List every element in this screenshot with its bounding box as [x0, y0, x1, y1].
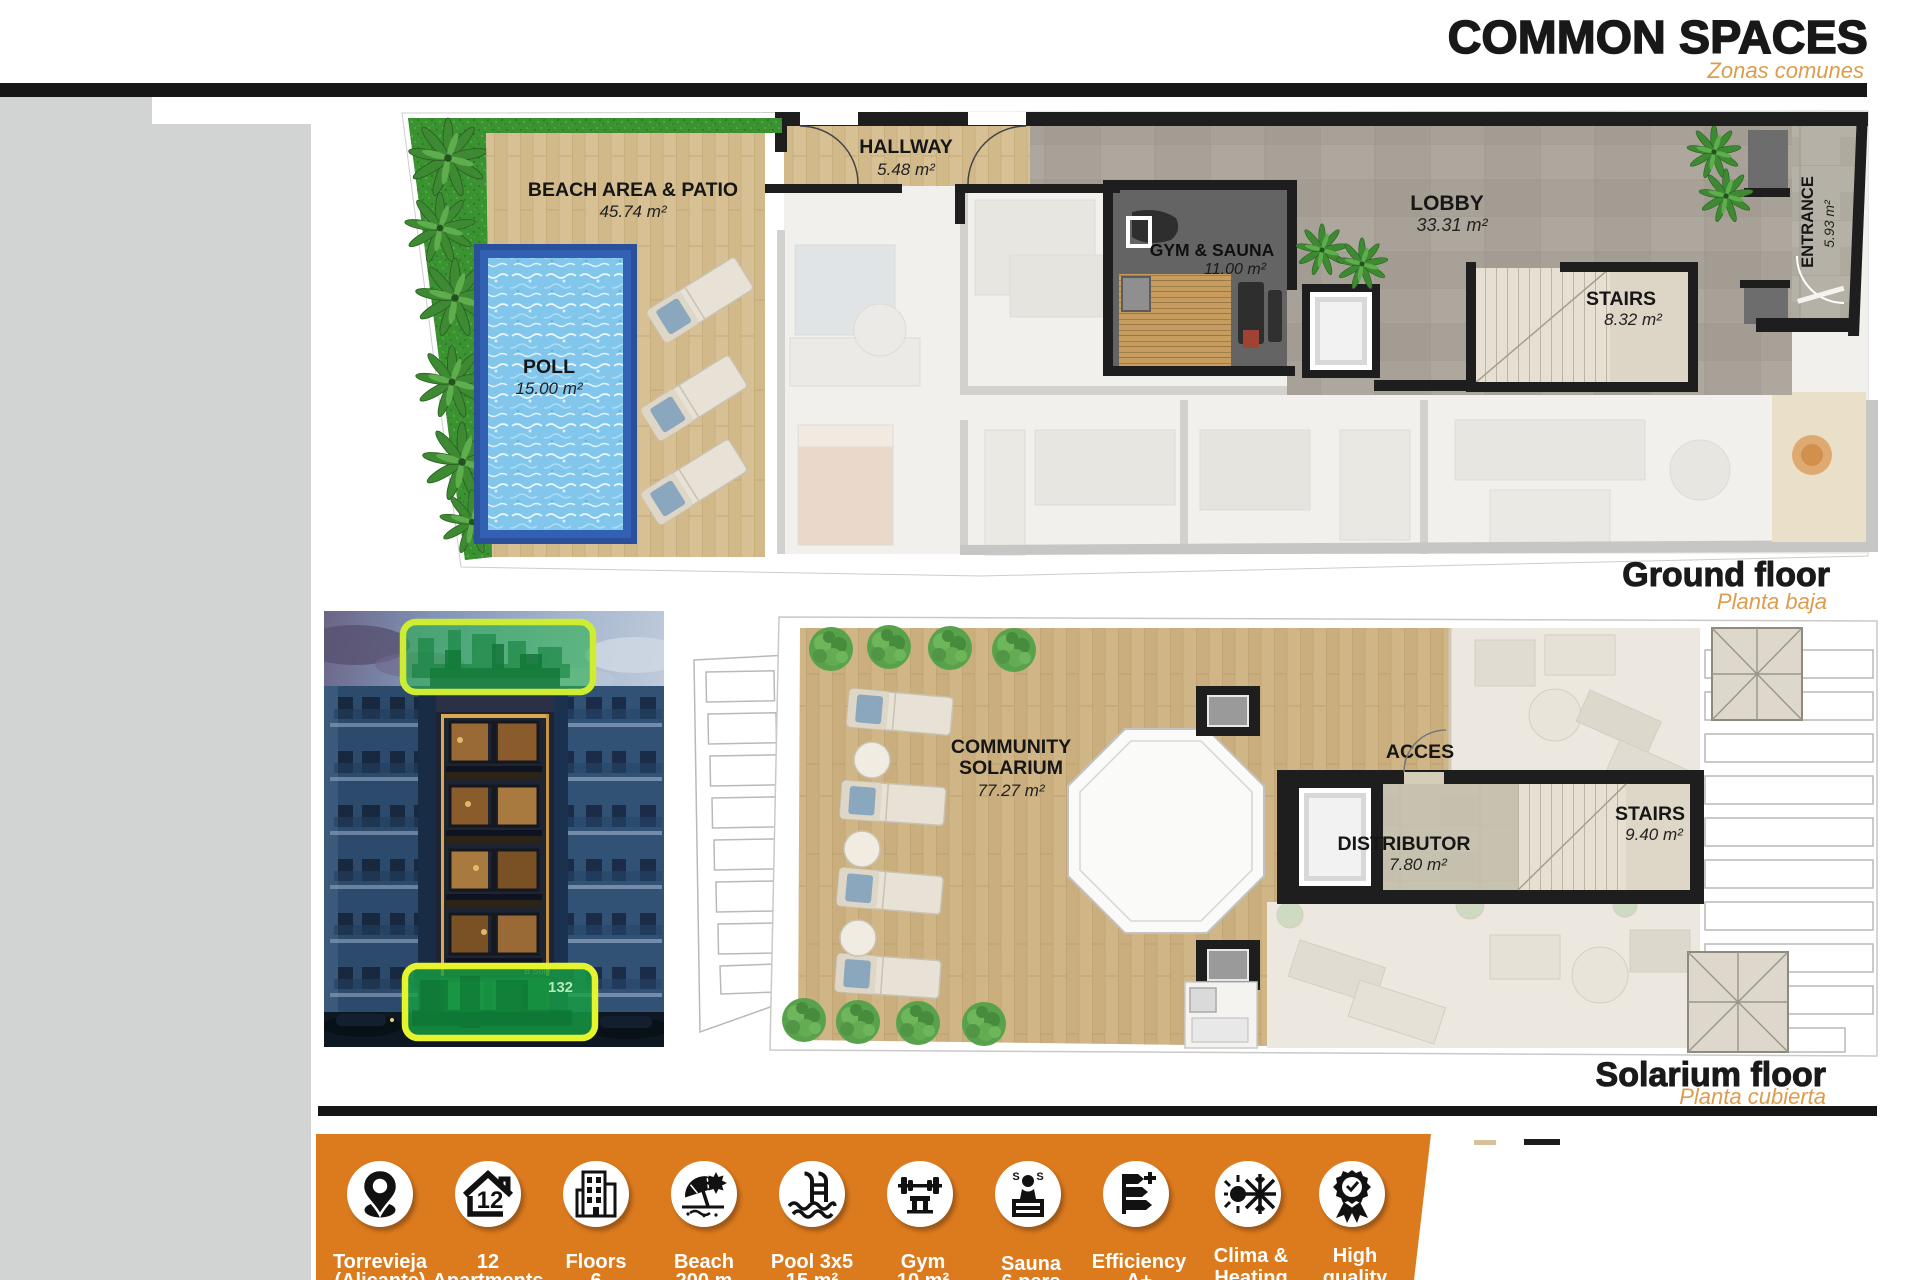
svg-text:5.48 m²: 5.48 m² [877, 160, 936, 179]
svg-text:HALLWAY: HALLWAY [859, 136, 953, 158]
svg-text:12: 12 [477, 1187, 504, 1214]
svg-text:COMMON SPACES: COMMON SPACES [1448, 11, 1868, 63]
svg-text:33.31 m²: 33.31 m² [1416, 215, 1488, 235]
svg-text:8.32 m²: 8.32 m² [1604, 310, 1663, 329]
svg-text:Planta baja: Planta baja [1717, 589, 1827, 614]
svg-text:5.93 m²: 5.93 m² [1821, 199, 1837, 248]
svg-text:Apartments: Apartments [432, 1270, 543, 1280]
svg-text:9.40 m²: 9.40 m² [1625, 825, 1684, 844]
svg-text:15.00 m²: 15.00 m² [515, 379, 583, 398]
svg-text:11.00 m²: 11.00 m² [1204, 261, 1267, 278]
svg-text:quality: quality [1323, 1267, 1388, 1280]
svg-text:S: S [1012, 1171, 1019, 1183]
svg-text:45.74 m²: 45.74 m² [599, 202, 667, 221]
svg-text:6 pers: 6 pers [1002, 1271, 1061, 1280]
svg-text:SOLARIUM: SOLARIUM [959, 757, 1063, 779]
svg-text:6: 6 [590, 1270, 601, 1280]
svg-text:ENTRANCE: ENTRANCE [1799, 176, 1817, 268]
svg-text:S: S [1036, 1171, 1043, 1183]
svg-text:High: High [1333, 1245, 1377, 1267]
svg-text:BEACH AREA & PATIO: BEACH AREA & PATIO [528, 179, 738, 201]
svg-text:(Alicante): (Alicante) [334, 1270, 425, 1280]
svg-text:A+: A+ [1126, 1270, 1152, 1280]
svg-text:DISTRIBUTOR: DISTRIBUTOR [1338, 833, 1471, 855]
svg-text:200 m: 200 m [676, 1270, 733, 1280]
svg-text:15 m²: 15 m² [786, 1270, 839, 1280]
svg-text:LOBBY: LOBBY [1410, 192, 1484, 215]
svg-text:COMMUNITY: COMMUNITY [951, 736, 1071, 758]
svg-text:132: 132 [548, 979, 573, 996]
svg-text:ACCES: ACCES [1386, 741, 1454, 763]
svg-text:Clima &: Clima & [1214, 1245, 1288, 1267]
svg-text:STAIRS: STAIRS [1615, 803, 1685, 825]
svg-text:POLL: POLL [523, 356, 575, 378]
svg-text:GYM & SAUNA: GYM & SAUNA [1150, 240, 1275, 260]
svg-text:Heating: Heating [1214, 1267, 1287, 1280]
svg-text:STAIRS: STAIRS [1586, 288, 1656, 310]
svg-text:Zonas comunes: Zonas comunes [1706, 58, 1864, 83]
svg-text:Planta cubierta: Planta cubierta [1679, 1084, 1826, 1109]
svg-text:77.27 m²: 77.27 m² [977, 781, 1045, 800]
svg-text:7.80 m²: 7.80 m² [1389, 855, 1448, 874]
svg-text:10 m²: 10 m² [897, 1270, 950, 1280]
